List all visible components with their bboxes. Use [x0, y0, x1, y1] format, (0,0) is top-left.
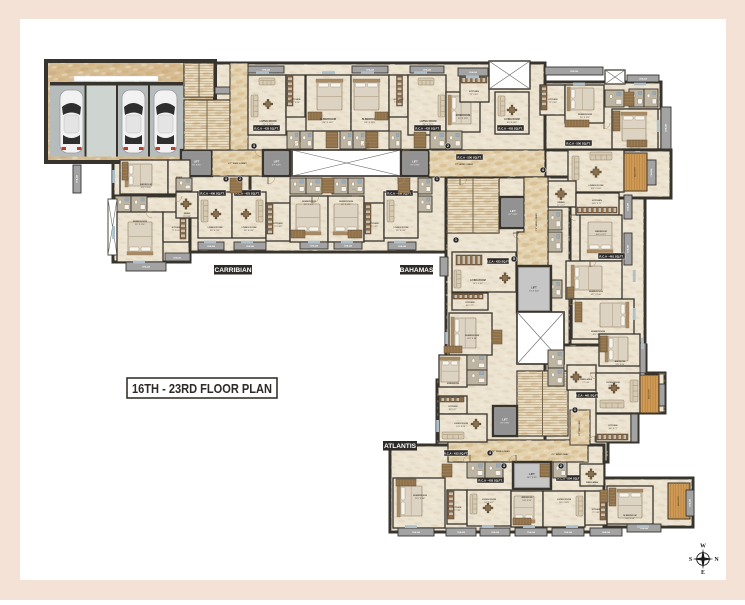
svg-text:7'0" WIDE LOBBY: 7'0" WIDE LOBBY [536, 213, 538, 231]
svg-text:KITCHEN: KITCHEN [370, 223, 379, 225]
svg-text:KITCHEN: KITCHEN [549, 99, 558, 101]
svg-text:LIVING ROOM: LIVING ROOM [394, 227, 409, 229]
svg-text:BEDROOM: BEDROOM [615, 361, 626, 363]
svg-text:CHAJJA: CHAJJA [527, 531, 536, 534]
svg-text:3: 3 [253, 144, 255, 148]
svg-text:LIVING ROOM: LIVING ROOM [470, 280, 486, 282]
svg-text:13'1" X 10'0": 13'1" X 10'0" [630, 148, 641, 150]
svg-text:CHAJJA: CHAJJA [398, 245, 407, 248]
svg-text:CHAJJA: CHAJJA [491, 531, 500, 534]
svg-text:10'1" X 9'6": 10'1" X 9'6" [609, 385, 618, 387]
svg-text:7'1" X 8'6": 7'1" X 8'6" [453, 510, 461, 512]
svg-text:M.BEDROOM: M.BEDROOM [413, 495, 427, 497]
svg-text:7'2" X 10'0": 7'2" X 10'0" [172, 230, 181, 232]
svg-text:BALCONY: BALCONY [648, 388, 651, 399]
svg-text:M.BEDROOM: M.BEDROOM [447, 383, 459, 385]
svg-text:10'5" X 9'6": 10'5" X 9'6" [473, 283, 484, 285]
svg-text:2: 2 [447, 144, 449, 148]
svg-text:KITCHEN: KITCHEN [274, 223, 283, 225]
svg-text:6'7" X 8'5": 6'7" X 8'5" [272, 165, 281, 167]
svg-text:M.BEDROOM: M.BEDROOM [465, 335, 479, 337]
svg-text:7'5" X 8'5": 7'5" X 8'5" [192, 165, 201, 167]
svg-text:KITCHEN: KITCHEN [609, 425, 618, 427]
svg-text:R.C.A - 433 SQ.FT.: R.C.A - 433 SQ.FT. [444, 451, 468, 455]
svg-text:KITCHEN: KITCHEN [592, 509, 601, 511]
svg-text:LIVING ROOM: LIVING ROOM [557, 499, 571, 501]
svg-text:7'1" X 9'6": 7'1" X 9'6" [549, 102, 557, 104]
svg-text:M.BEDROOM: M.BEDROOM [456, 115, 471, 117]
svg-text:6'7" WIDE LOBBY: 6'7" WIDE LOBBY [228, 163, 247, 165]
svg-text:R.C.A - 423 SQ.FT.: R.C.A - 423 SQ.FT. [486, 259, 510, 263]
svg-text:3: 3 [225, 177, 227, 181]
svg-text:6'7" X 8'5": 6'7" X 8'5" [500, 423, 509, 425]
svg-text:9'6" X 12'0": 9'6" X 12'0" [304, 204, 314, 206]
svg-text:KITCHEN: KITCHEN [469, 91, 479, 93]
svg-text:9'6" X 23'3": 9'6" X 23'3" [210, 230, 220, 232]
svg-text:8'6" X 7'1": 8'6" X 7'1" [466, 305, 474, 307]
svg-text:KITCHEN: KITCHEN [394, 99, 404, 101]
svg-text:10'0" X 11'5": 10'0" X 11'5" [596, 234, 607, 236]
svg-text:LIVING ROOM: LIVING ROOM [482, 499, 496, 501]
svg-text:BALCONY: BALCONY [634, 166, 637, 177]
svg-text:CHAJJA: CHAJJA [602, 531, 611, 534]
svg-text:LIFT: LIFT [529, 472, 535, 476]
svg-text:BAHAMAS: BAHAMAS [400, 267, 434, 274]
svg-text:9'0" WIDE LOBBY: 9'0" WIDE LOBBY [579, 420, 581, 436]
svg-text:10'2" X 8'5": 10'2" X 8'5" [527, 477, 537, 479]
svg-text:9'6" X 12'0": 9'6" X 12'0" [580, 117, 590, 119]
svg-text:9'6" X 13'0": 9'6" X 13'0" [507, 122, 518, 124]
svg-text:LIFT: LIFT [194, 160, 200, 164]
svg-text:R.C.A - 550 SQ.FT.: R.C.A - 550 SQ.FT. [457, 155, 481, 159]
svg-text:CHAJJA: CHAJJA [262, 68, 271, 71]
svg-text:4: 4 [542, 168, 544, 172]
svg-text:CHAJJA: CHAJJA [650, 168, 653, 177]
svg-text:1: 1 [436, 177, 438, 181]
svg-text:6'7" X 8'5": 6'7" X 8'5" [508, 214, 517, 216]
svg-text:CHAJJA: CHAJJA [564, 531, 573, 534]
svg-text:CHAJJA: CHAJJA [627, 244, 630, 253]
svg-text:LIVING ROOM: LIVING ROOM [606, 382, 620, 384]
svg-text:LIVING ROOM: LIVING ROOM [504, 119, 520, 121]
svg-text:7'2" X 9'6": 7'2" X 9'6" [394, 102, 403, 104]
svg-text:LIVING ROOM: LIVING ROOM [242, 227, 257, 229]
svg-text:M.BEDROOM: M.BEDROOM [133, 221, 147, 223]
svg-text:R.C.A - 409 SQ.FT.: R.C.A - 409 SQ.FT. [200, 191, 224, 195]
svg-text:BALCONY: BALCONY [677, 495, 680, 506]
svg-text:12'0" X 9'6": 12'0" X 9'6" [467, 338, 477, 340]
svg-text:CHAJJA: CHAJJA [665, 123, 668, 132]
svg-text:N: N [714, 557, 719, 563]
svg-text:10'2" X 7'1": 10'2" X 7'1" [592, 203, 602, 205]
svg-text:8'6" X 7'1": 8'6" X 7'1" [449, 409, 457, 411]
svg-text:LIFT: LIFT [274, 160, 280, 164]
svg-text:16TH - 23RD FLOOR PLAN: 16TH - 23RD FLOOR PLAN [132, 381, 272, 396]
svg-text:LIVING ROOM: LIVING ROOM [420, 120, 437, 123]
svg-text:10'6" X 20'0": 10'6" X 20'0" [591, 188, 602, 190]
svg-text:7'7" X 7'7": 7'7" X 7'7" [557, 205, 565, 207]
svg-text:9'6" X 12'0": 9'6" X 12'0" [135, 224, 145, 226]
svg-text:7'2" X 9'6": 7'2" X 9'6" [470, 94, 479, 96]
svg-text:CHAJJA: CHAJJA [76, 174, 79, 183]
svg-text:BEDROOM: BEDROOM [595, 231, 607, 233]
svg-text:7'2" X 9'6": 7'2" X 9'6" [291, 102, 300, 104]
svg-text:10'0" X 10'5": 10'0" X 10'5" [559, 502, 570, 504]
svg-text:DINING AREA: DINING AREA [586, 481, 599, 484]
svg-text:9'6" X 12'0": 9'6" X 12'0" [341, 204, 351, 206]
svg-text:W: W [700, 544, 706, 550]
svg-text:KITCHEN: KITCHEN [453, 507, 462, 509]
svg-text:CHAJJA: CHAJJA [344, 244, 353, 247]
svg-text:E: E [701, 570, 705, 576]
svg-text:R.C.A - 403 SQ.FT.: R.C.A - 403 SQ.FT. [478, 478, 502, 482]
svg-text:CHAJJA: CHAJJA [246, 245, 255, 248]
svg-text:CHAJJA: CHAJJA [310, 244, 319, 247]
svg-text:CHAJJA: CHAJJA [639, 77, 648, 80]
svg-text:10'1" X 9'6": 10'1" X 9'6" [456, 426, 466, 428]
svg-text:6'0" WIDE LOBBY: 6'0" WIDE LOBBY [552, 454, 570, 456]
svg-text:M.BEDROOM: M.BEDROOM [578, 114, 592, 116]
svg-text:CHAJJA: CHAJJA [627, 202, 630, 211]
svg-text:7'7" WIDE LOBBY: 7'7" WIDE LOBBY [455, 164, 474, 166]
svg-text:9'6" X 23'3": 9'6" X 23'3" [396, 230, 406, 232]
svg-text:14'7" X 10'0": 14'7" X 10'0" [591, 294, 602, 296]
svg-text:R.C.A - 433 SQ.FT.: R.C.A - 433 SQ.FT. [415, 126, 439, 130]
svg-text:2: 2 [239, 177, 241, 181]
svg-text:R.C.A - 550 SQ.FT.: R.C.A - 550 SQ.FT. [566, 141, 590, 145]
svg-text:LIFT: LIFT [531, 286, 537, 290]
svg-text:7'3" X 10'2": 7'3" X 10'2" [529, 291, 539, 293]
svg-text:9'6" X 23'3": 9'6" X 23'3" [244, 230, 254, 232]
svg-text:7'1" X 8'6": 7'1" X 8'6" [592, 512, 600, 514]
svg-text:LIVING ROOM: LIVING ROOM [589, 185, 604, 187]
svg-text:LIFT: LIFT [510, 209, 516, 213]
svg-text:9'6" X 12'0": 9'6" X 12'0" [322, 122, 333, 124]
svg-text:M.BEDROOM: M.BEDROOM [589, 291, 603, 293]
svg-text:LIVING ROOM: LIVING ROOM [454, 423, 468, 425]
svg-text:KITCHEN: KITCHEN [466, 302, 475, 304]
svg-text:M.BEDROOM: M.BEDROOM [320, 118, 336, 121]
svg-text:12'0" X 10'0": 12'0" X 10'0" [141, 187, 152, 189]
svg-text:7'6" X 9'6": 7'6" X 9'6" [183, 216, 191, 218]
svg-text:CHAJJA: CHAJJA [142, 265, 151, 268]
svg-text:CHAJJA: CHAJJA [469, 71, 478, 74]
svg-text:R.C.A - 461 SQ.FT.: R.C.A - 461 SQ.FT. [599, 254, 623, 258]
svg-text:5: 5 [513, 257, 515, 261]
svg-text:6'7" X 8'5": 6'7" X 8'5" [410, 165, 419, 167]
svg-text:ATLANTIS: ATLANTIS [384, 443, 417, 450]
svg-text:3'5" X 7'7": 3'5" X 7'7" [588, 485, 596, 487]
svg-text:M.BEDROOM: M.BEDROOM [623, 515, 636, 517]
svg-text:7'2" X 9'6": 7'2" X 9'6" [370, 226, 378, 228]
svg-text:R.C.A - 461 SQ.FT.: R.C.A - 461 SQ.FT. [575, 393, 599, 397]
svg-text:10'0" X 9'6": 10'0" X 9'6" [522, 500, 532, 502]
svg-text:1: 1 [574, 408, 576, 412]
svg-text:12'0" X 9'6": 12'0" X 9'6" [415, 498, 425, 500]
svg-text:CHAJJA: CHAJJA [173, 257, 181, 260]
svg-text:CHAJJA: CHAJJA [423, 68, 432, 71]
svg-text:CHAJJA: CHAJJA [457, 531, 466, 534]
svg-text:9'6" X 10'5": 9'6" X 10'5" [484, 502, 494, 504]
svg-text:R.C.A - 433 SQ.FT.: R.C.A - 433 SQ.FT. [254, 126, 278, 130]
svg-text:3: 3 [503, 464, 505, 468]
svg-text:LIVING ROOM: LIVING ROOM [208, 227, 223, 229]
svg-text:KITCHEN: KITCHEN [291, 99, 301, 101]
svg-text:BEDROOM: BEDROOM [522, 497, 533, 499]
svg-text:LIFT: LIFT [412, 160, 418, 164]
svg-text:4: 4 [489, 451, 491, 455]
svg-text:LIFT: LIFT [502, 418, 508, 422]
svg-text:12'0" X 9'6": 12'0" X 9'6" [625, 518, 635, 520]
svg-text:LIVING ROOM: LIVING ROOM [260, 120, 277, 123]
svg-text:DINING: DINING [184, 213, 191, 215]
svg-text:CHAJJA: CHAJJA [412, 531, 421, 534]
svg-text:9'0" X 12'0": 9'0" X 12'0" [458, 118, 469, 120]
svg-text:CHAJJA: CHAJJA [207, 245, 216, 248]
svg-text:CHAJJA: CHAJJA [366, 68, 375, 71]
svg-text:DINING AREA: DINING AREA [580, 378, 593, 381]
svg-text:2: 2 [560, 464, 562, 468]
svg-text:CHAJJA: CHAJJA [570, 70, 579, 73]
svg-text:CARRIBIAN: CARRIBIAN [215, 267, 252, 274]
svg-text:7'2" X 9'6": 7'2" X 9'6" [274, 226, 282, 228]
svg-text:KITCHEN: KITCHEN [449, 406, 458, 408]
svg-text:KITCHEN: KITCHEN [592, 200, 602, 202]
svg-text:KITCHEN: KITCHEN [172, 227, 181, 229]
svg-text:10'0" X 7'1": 10'0" X 7'1" [609, 428, 618, 430]
svg-text:DINING: DINING [558, 202, 565, 204]
svg-text:BEDROOM: BEDROOM [140, 184, 152, 186]
svg-text:7'7" X 4'9": 7'7" X 4'9" [582, 382, 590, 384]
svg-text:R.C.A - 403 SQ.FT.: R.C.A - 403 SQ.FT. [498, 126, 522, 130]
svg-text:9'6" X 12'0": 9'6" X 12'0" [364, 122, 375, 124]
svg-text:M.BEDROOM: M.BEDROOM [591, 331, 605, 333]
svg-text:1: 1 [455, 238, 457, 242]
svg-text:CHAJJA: CHAJJA [689, 498, 692, 507]
svg-text:12'5" X 9'6": 12'5" X 9'6" [616, 364, 625, 366]
svg-text:M.BEDROOM: M.BEDROOM [339, 201, 353, 203]
